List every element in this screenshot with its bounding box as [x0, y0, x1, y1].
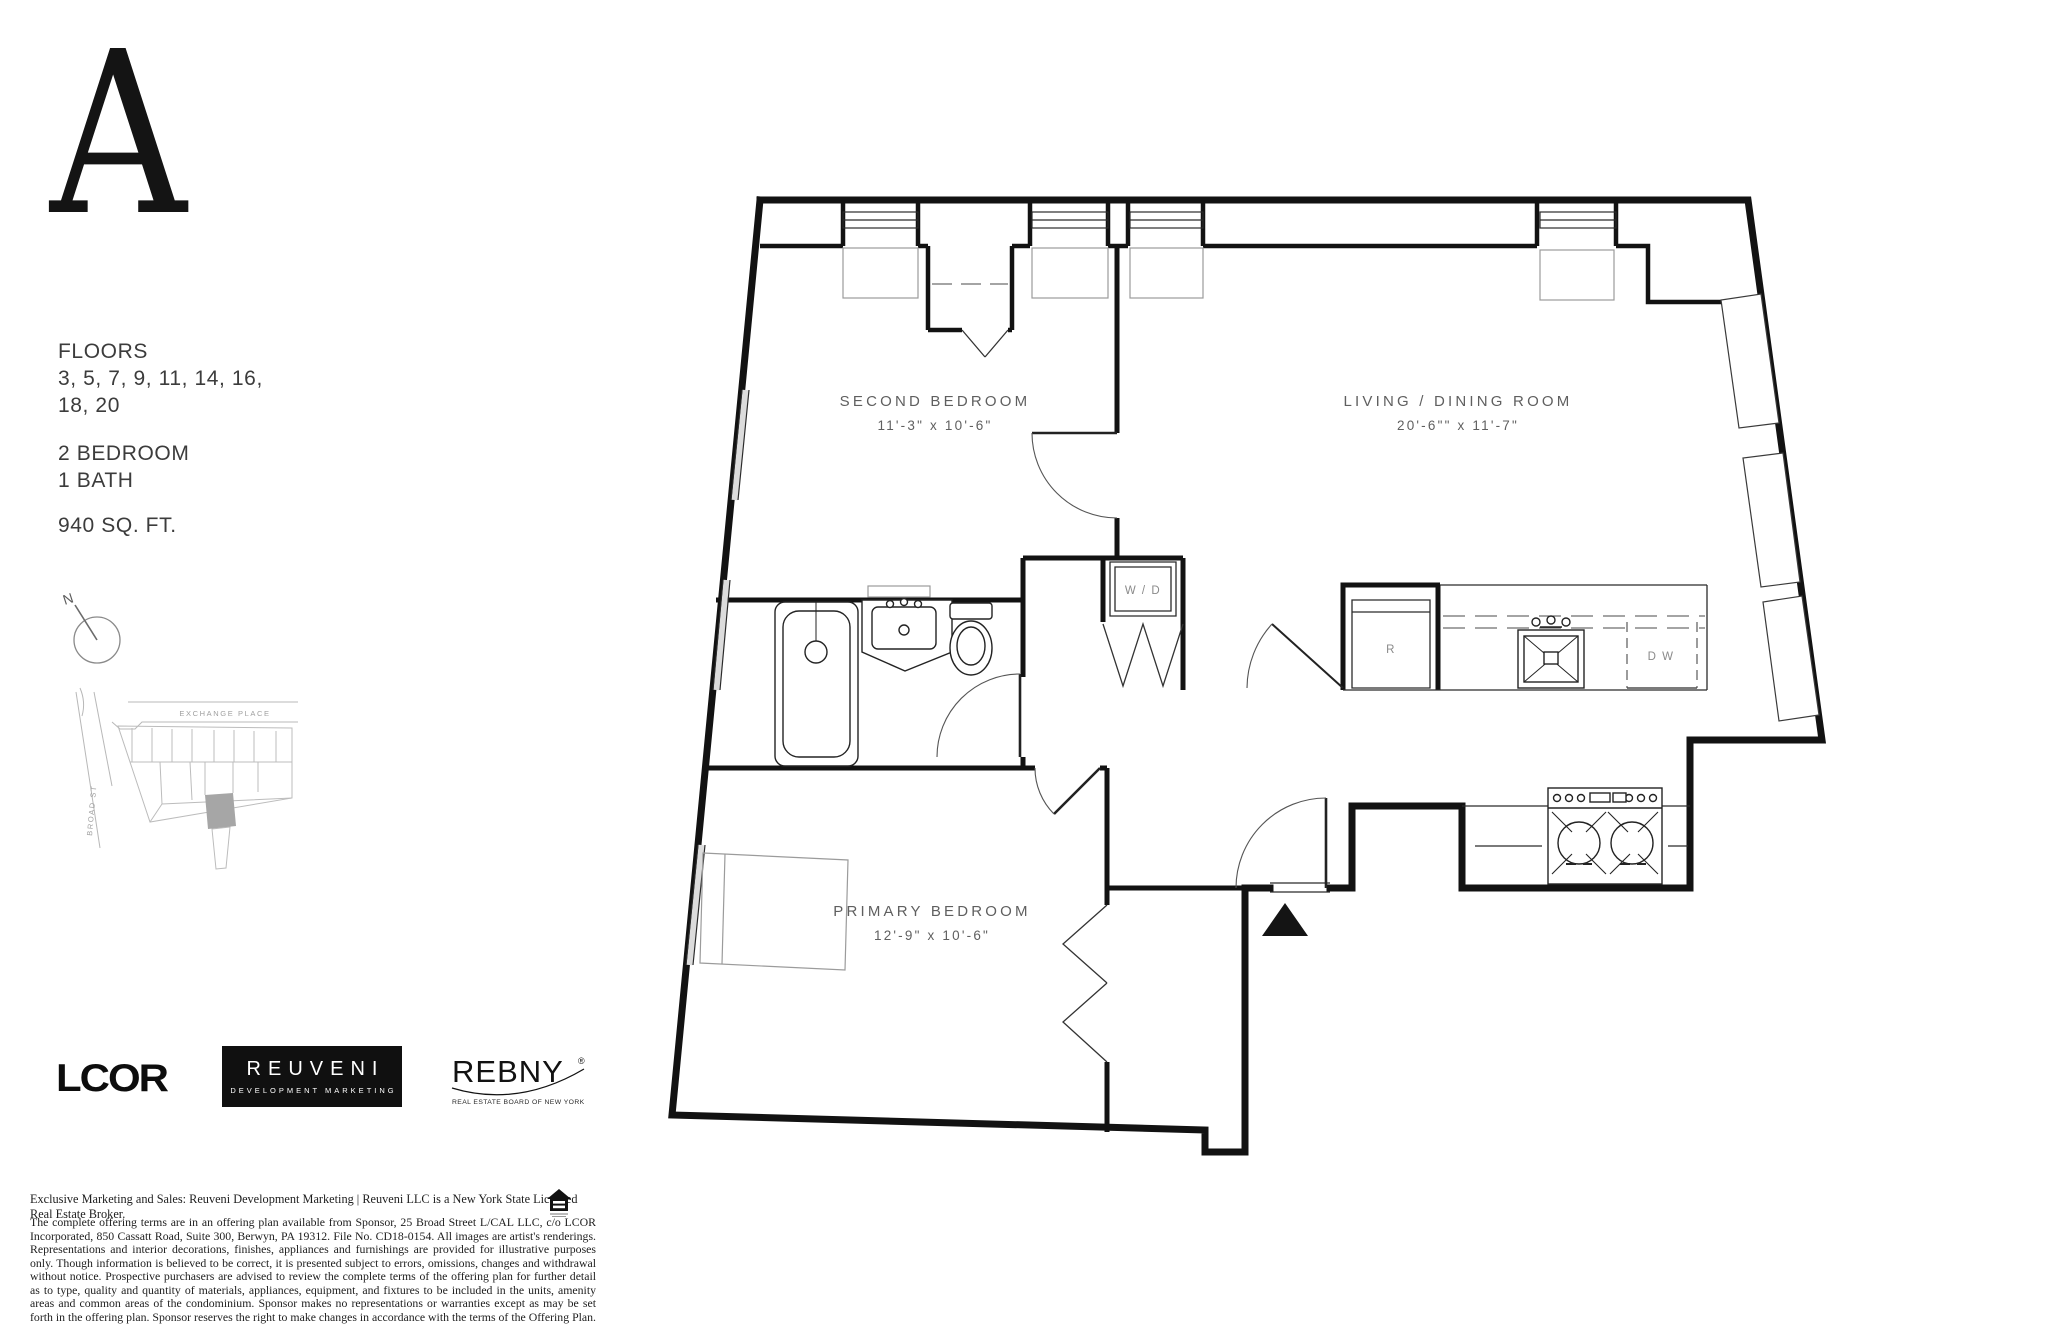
map-street-broad-st: BROAD ST — [85, 784, 98, 836]
radiator — [1032, 248, 1108, 298]
bath-label: 1 BATH — [58, 467, 189, 494]
rebny-logo-title: REBNY — [452, 1054, 564, 1089]
kitchen-sink — [1518, 616, 1584, 688]
entry-marker-triangle — [1262, 903, 1308, 936]
bathroom-sink — [862, 599, 952, 672]
map-highlighted-building — [205, 793, 236, 829]
reuveni-logo-title: REUVENI — [240, 1058, 385, 1081]
legal-disclaimer: The complete offering terms are in an of… — [30, 1216, 596, 1325]
doors — [937, 330, 1343, 1062]
top-windows — [843, 212, 1616, 228]
toilet — [950, 603, 992, 675]
compass-north-label: N — [61, 589, 76, 607]
floors-line2: 18, 20 — [58, 392, 263, 419]
radiator — [1540, 250, 1614, 300]
radiator — [1130, 248, 1203, 298]
floors-line1: 3, 5, 7, 9, 11, 14, 16, — [58, 365, 263, 392]
bedbath-block: 2 BEDROOM 1 BATH — [58, 440, 189, 494]
washer-dryer-label: W / D — [1125, 585, 1161, 597]
closet-bifold-doors — [1063, 905, 1107, 1062]
floorplan-drawing: SECOND BEDROOM 11'-3" x 10'-6" LIVING / … — [650, 180, 1890, 1180]
closet-niche-doors — [962, 330, 1008, 357]
compass-icon: N — [55, 585, 155, 685]
living-dining-label: LIVING / DINING ROOM — [1343, 393, 1572, 410]
second-bedroom-label: SECOND BEDROOM — [840, 393, 1031, 410]
map-buildings — [118, 726, 292, 869]
rebny-logo-subtitle: REAL ESTATE BOARD OF NEW YORK — [452, 1099, 585, 1106]
second-bedroom-door — [1032, 433, 1117, 518]
primary-bedroom-dims: 12'-9" x 10'-6" — [874, 928, 990, 943]
living-dining-dims: 20'-6"" x 11'-7" — [1397, 418, 1519, 433]
left-wall-windows — [686, 390, 749, 965]
primary-bedroom-door — [1035, 768, 1100, 814]
entry-door — [1236, 798, 1326, 888]
rebny-logo: REBNY ® REAL ESTATE BOARD OF NEW YORK — [450, 1052, 595, 1114]
lcor-logo: LCOR — [56, 1056, 167, 1100]
equal-housing-icon — [546, 1188, 572, 1220]
dashed-cabinets — [932, 284, 1705, 688]
bathroom-door — [937, 674, 1020, 757]
radiator — [843, 248, 918, 298]
washer-dryer-bifold-doors — [1103, 624, 1183, 686]
bedrooms-label: 2 BEDROOM — [58, 440, 189, 467]
right-wall-window-units — [1721, 294, 1819, 721]
reuveni-logo: REUVENI DEVELOPMENT MARKETING — [222, 1046, 402, 1107]
second-bedroom-dims: 11'-3" x 10'-6" — [877, 418, 992, 433]
area-label: 940 SQ. FT. — [58, 512, 177, 539]
bathtub — [775, 602, 858, 766]
dishwasher-label: D W — [1648, 651, 1675, 663]
stove — [1548, 788, 1662, 884]
floorplan-sheet: A FLOORS 3, 5, 7, 9, 11, 14, 16, 18, 20 … — [0, 0, 2048, 1325]
unit-letter: A — [50, 34, 187, 237]
floors-label: FLOORS — [58, 338, 263, 365]
kitchen-hall-door — [1247, 624, 1343, 688]
floors-block: FLOORS 3, 5, 7, 9, 11, 14, 16, 18, 20 — [58, 338, 263, 419]
area-block: 940 SQ. FT. — [58, 512, 177, 539]
reuveni-logo-subtitle: DEVELOPMENT MARKETING — [227, 1086, 396, 1095]
refrigerator-label: R — [1386, 644, 1396, 656]
primary-bedroom-label: PRIMARY BEDROOM — [833, 903, 1030, 920]
vanity-shelf — [868, 586, 930, 597]
fixtures — [775, 599, 1662, 885]
map-street-exchange-place: EXCHANGE PLACE — [179, 709, 270, 718]
rebny-registered-mark: ® — [578, 1056, 585, 1066]
location-map: EXCHANGE PLACE BROAD ST — [50, 680, 320, 895]
